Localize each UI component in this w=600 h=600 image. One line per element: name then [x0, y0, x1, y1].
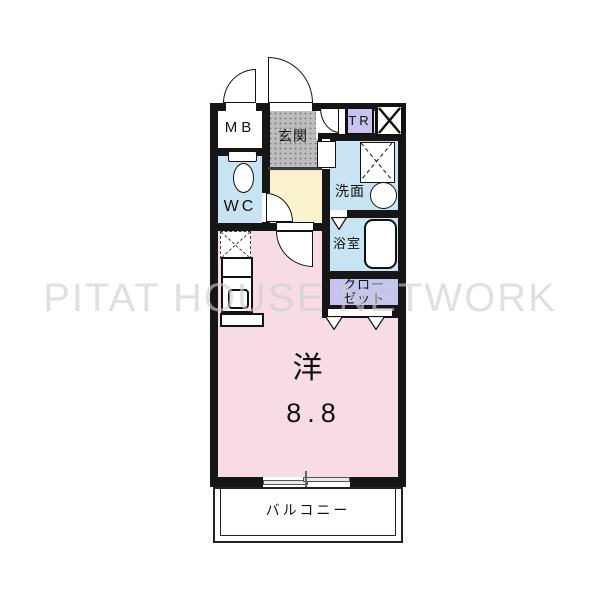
main-room-type-label: 洋 [218, 352, 398, 385]
wall-right [398, 103, 406, 487]
pipe-shaft-box [375, 104, 404, 137]
main-room-size-label: 8.8 [224, 399, 404, 429]
entrance-step-line [268, 167, 322, 170]
closet-accordion-door-icon [367, 316, 385, 330]
meter-box-door-arc-icon [223, 69, 256, 103]
entrance-label: 玄関 [266, 129, 320, 144]
trunk-room-label: TR [346, 114, 374, 128]
closet-label: クロー ゼット [330, 278, 398, 306]
toilet-tank-icon [228, 151, 257, 162]
kitchen-divider-line [223, 276, 251, 278]
doorgap-meter-box [226, 103, 256, 111]
toilet-bowl-icon [233, 163, 254, 193]
floorplan-page: MB 玄関 TR WC 洗面 浴室 クロー ゼット 洋 8.8 バルコニー PI… [0, 0, 600, 600]
sliding-window-sash [303, 477, 350, 482]
closet-label-line2: ゼット [330, 292, 398, 306]
closet-accordion-door-icon [325, 316, 343, 330]
pipe-shaft-x-icon [378, 107, 401, 134]
refrigerator-space-icon [220, 231, 251, 259]
meter-box-label: MB [218, 120, 262, 137]
washing-machine-space-icon [360, 142, 395, 183]
bathroom-folding-door-icon [331, 217, 347, 230]
main-room-door-leaf [276, 222, 314, 231]
washroom-door-leaf [317, 141, 336, 168]
closet-label-line1: クロー [330, 278, 398, 292]
kitchen-base-icon [220, 313, 264, 327]
entrance-door-arc-icon [268, 57, 313, 103]
doorgap-entrance [270, 103, 312, 111]
entrance-inner-door-leaf [338, 108, 346, 135]
sliding-window-sash [263, 480, 308, 485]
balcony-label: バルコニー [213, 503, 403, 518]
washroom-label: 洗面 [330, 184, 370, 199]
bathtub-icon [364, 219, 397, 269]
washbasin-icon [370, 182, 397, 209]
bathroom-label: 浴室 [330, 237, 364, 251]
toilet-room-label: WC [218, 198, 262, 216]
wall-left [210, 103, 218, 487]
kitchen-sink-icon [228, 289, 249, 309]
